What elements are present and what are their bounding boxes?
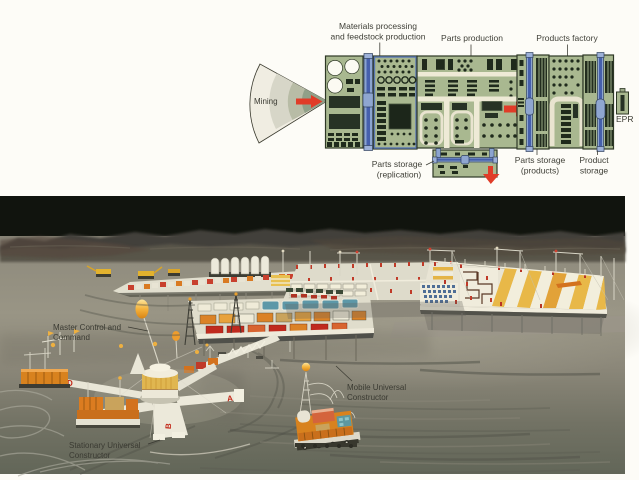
svg-text:Parts production: Parts production: [441, 33, 503, 43]
svg-text:Products factory: Products factory: [536, 33, 598, 43]
svg-text:Mobile Universal: Mobile Universal: [347, 383, 406, 392]
svg-text:Materials processing: Materials processing: [339, 21, 417, 31]
svg-text:Parts storage: Parts storage: [515, 155, 566, 165]
svg-text:A: A: [227, 394, 234, 404]
svg-text:B: B: [164, 423, 173, 430]
svg-text:Product: Product: [579, 155, 609, 165]
svg-text:(replication): (replication): [377, 170, 422, 180]
svg-text:Parts storage: Parts storage: [372, 159, 423, 169]
svg-text:(products): (products): [521, 166, 559, 176]
svg-text:Stationary Universal: Stationary Universal: [69, 441, 141, 450]
svg-text:Master Control and: Master Control and: [53, 323, 121, 332]
svg-text:EPR: EPR: [616, 114, 633, 124]
svg-text:Mining: Mining: [254, 97, 278, 106]
svg-text:Constructor: Constructor: [69, 451, 111, 460]
svg-text:Command: Command: [53, 333, 90, 342]
svg-text:Constructor: Constructor: [347, 393, 389, 402]
svg-text:and feedstock production: and feedstock production: [331, 32, 426, 42]
svg-text:storage: storage: [580, 166, 609, 176]
